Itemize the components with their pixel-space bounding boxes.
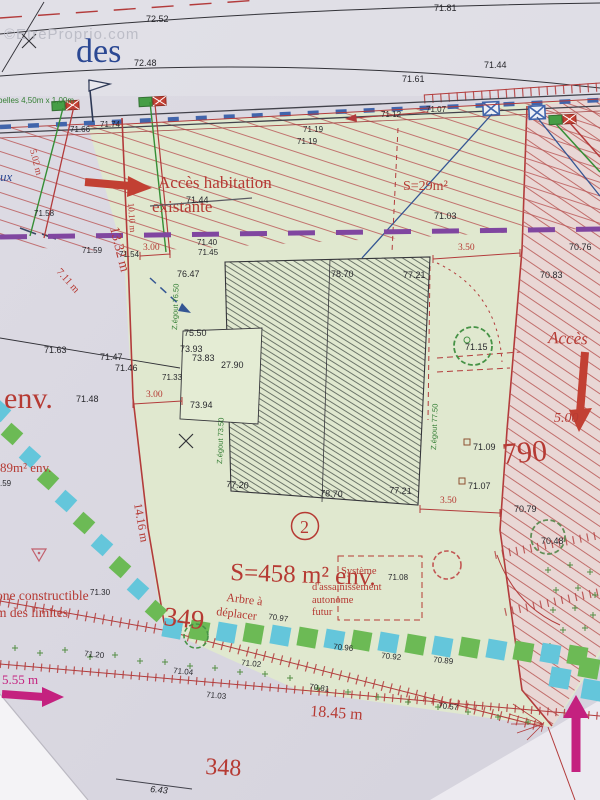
cadastral-plan-photo: des 72.52 71.81 72.48 71.61 71.44 71.12 … (0, 0, 600, 800)
photo-sheen (0, 0, 600, 800)
plan-drawing: des 72.52 71.81 72.48 71.61 71.44 71.12 … (0, 0, 600, 800)
watermark: ©EtreProprio.com (4, 26, 139, 43)
